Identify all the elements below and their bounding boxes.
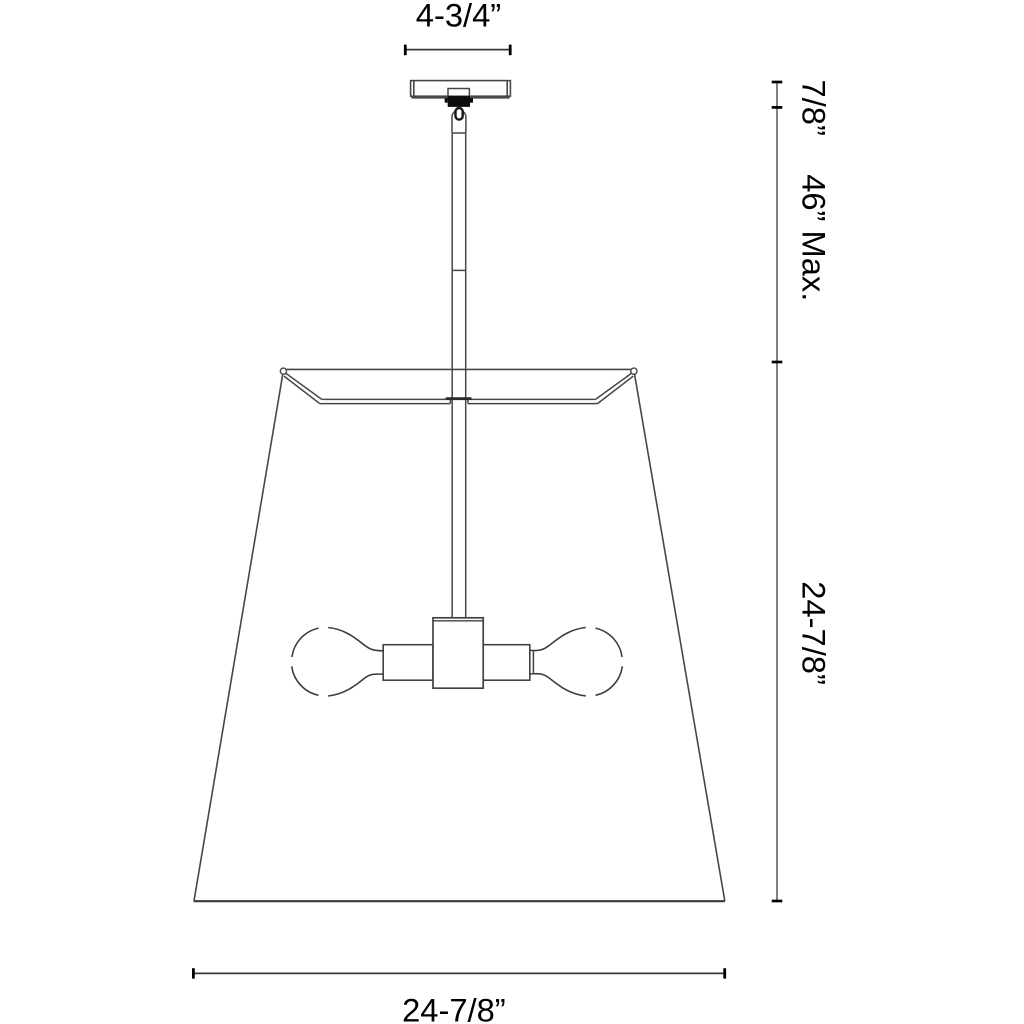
svg-text:4-3/4”: 4-3/4” [416,0,501,33]
svg-text:46” Max.: 46” Max. [796,174,833,301]
svg-text:7/8”: 7/8” [796,80,833,136]
svg-text:24-7/8”: 24-7/8” [796,581,833,685]
svg-text:24-7/8”: 24-7/8” [402,992,506,1024]
